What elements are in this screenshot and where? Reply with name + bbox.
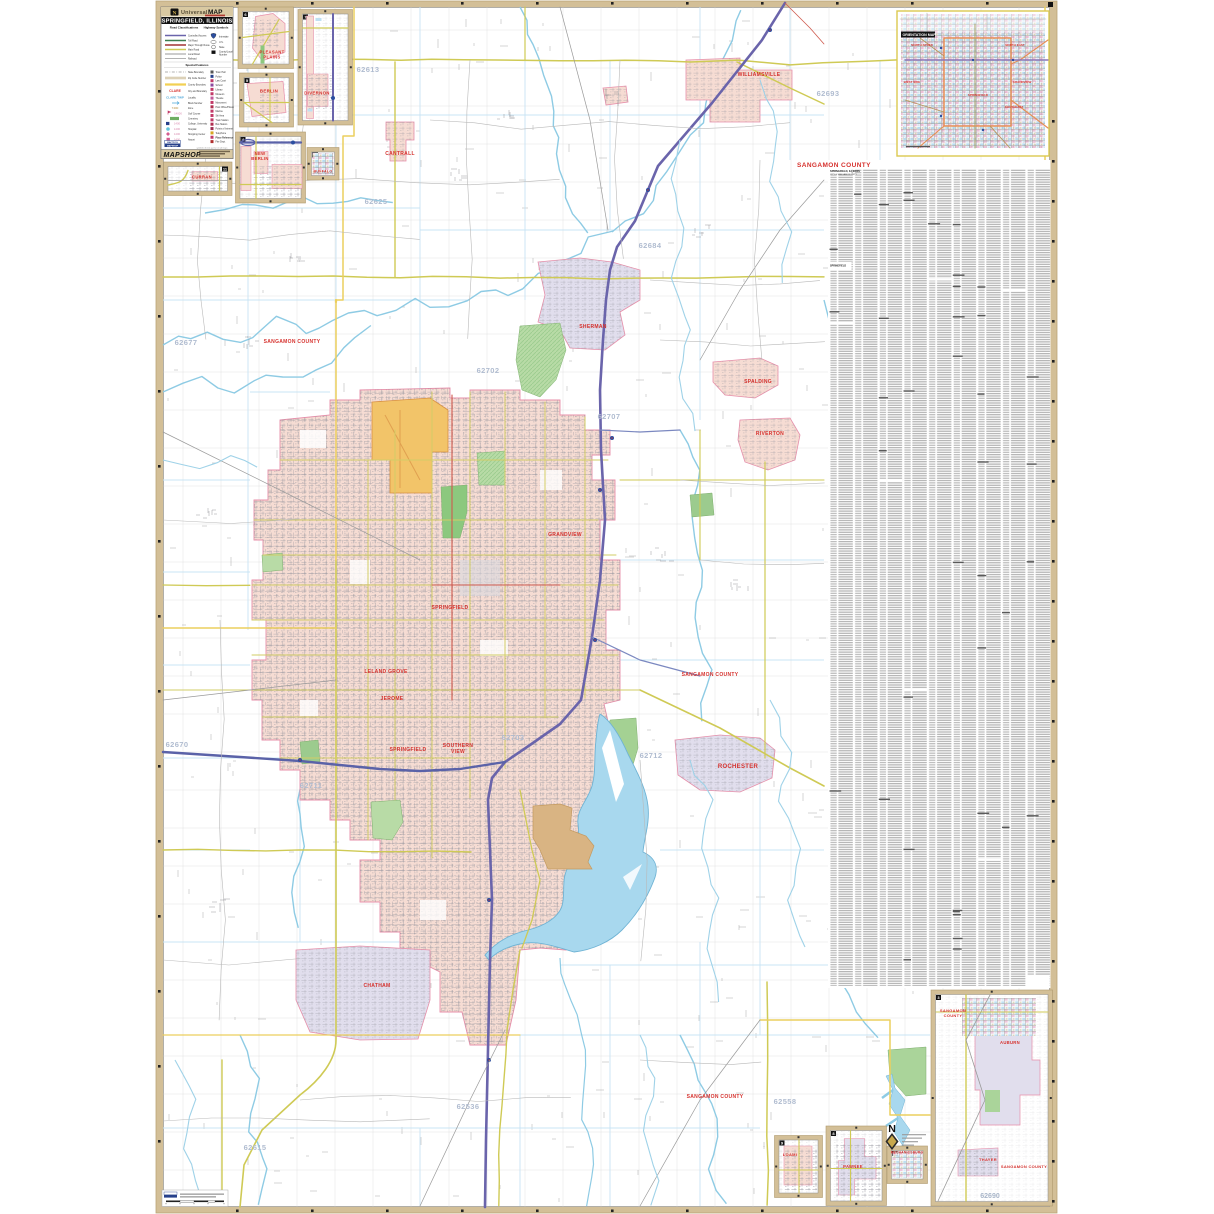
svg-text:Hospital: Hospital — [188, 128, 197, 131]
svg-text:CLARE: CLARE — [169, 89, 181, 93]
svg-text:DIVERNON: DIVERNON — [304, 91, 330, 96]
svg-text:MAPTECH: MAPTECH — [167, 141, 178, 144]
svg-text:62684: 62684 — [639, 241, 662, 250]
svg-text:ORIENTATION MAP: ORIENTATION MAP — [903, 33, 937, 37]
svg-text:SPRINGFIELD: SPRINGFIELD — [830, 265, 846, 268]
svg-text:Main Road: Main Road — [188, 50, 200, 52]
svg-text:1400: 1400 — [174, 127, 181, 131]
svg-text:62536: 62536 — [457, 1102, 480, 1111]
svg-text:SPRINGFIELD, ILLINOIS: SPRINGFIELD, ILLINOIS — [162, 19, 233, 25]
svg-text:LOAMI: LOAMI — [783, 1152, 797, 1157]
svg-text:62677: 62677 — [175, 338, 198, 347]
svg-text:1400: 1400 — [174, 122, 181, 126]
svg-text:LELAND GROVE: LELAND GROVE — [364, 669, 408, 675]
svg-text:Points of Interest: Points of Interest — [216, 128, 234, 131]
svg-text:Road Classifications: Road Classifications — [170, 26, 199, 30]
svg-text:62670: 62670 — [166, 740, 189, 749]
svg-text:VIEW: VIEW — [451, 749, 465, 755]
svg-text:SPRINGFIELD, ILLINOIS: SPRINGFIELD, ILLINOIS — [830, 169, 860, 173]
svg-text:CURRAN: CURRAN — [192, 175, 212, 180]
svg-text:Zone: Zone — [188, 108, 194, 110]
svg-text:Special Features: Special Features — [186, 63, 209, 67]
svg-text:Law Court: Law Court — [216, 80, 227, 83]
svg-text:SANGAMON COUNTY: SANGAMON COUNTY — [687, 1094, 744, 1100]
svg-text:SANGAMON COUNTY: SANGAMON COUNTY — [797, 162, 871, 169]
svg-text:SPRINGFIELD: SPRINGFIELD — [390, 747, 427, 753]
svg-text:WILLIAMSVILLE: WILLIAMSVILLE — [738, 72, 781, 78]
svg-text:GRANDVIEW: GRANDVIEW — [1013, 80, 1032, 84]
svg-text:CHATHAM: CHATHAM — [363, 983, 390, 989]
svg-text:SANGAMON COUNTY: SANGAMON COUNTY — [264, 339, 321, 345]
svg-text:Telephone: Telephone — [216, 133, 227, 135]
svg-text:Theatre: Theatre — [216, 97, 225, 100]
svg-text:Monument: Monument — [216, 101, 227, 104]
svg-text:Golf Course: Golf Course — [188, 113, 201, 116]
svg-text:SPRINGFIELD: SPRINGFIELD — [432, 605, 469, 611]
svg-text:Marina: Marina — [216, 110, 224, 113]
svg-text:NORTH SPGFD: NORTH SPGFD — [911, 43, 934, 47]
svg-text:College, University: College, University — [188, 123, 208, 126]
svg-text:County/Local: County/Local — [219, 51, 233, 54]
svg-text:AUBURN: AUBURN — [1000, 1040, 1020, 1045]
svg-text:14000: 14000 — [174, 112, 182, 116]
svg-text:Train Station: Train Station — [216, 119, 230, 122]
svg-text:62712: 62712 — [640, 751, 663, 760]
svg-text:CLARE TWP: CLARE TWP — [166, 96, 184, 100]
svg-text:SOUTHEAST: SOUTHEAST — [1005, 105, 1024, 109]
svg-text:Cemetery: Cemetery — [188, 118, 199, 121]
svg-text:NORTH EAST: NORTH EAST — [1005, 43, 1025, 47]
svg-text:SPALDING: SPALDING — [744, 379, 772, 385]
svg-text:CITY & SANGAMON CNTY: CITY & SANGAMON CNTY — [830, 173, 857, 176]
svg-text:RIVERTON: RIVERTON — [756, 431, 784, 437]
svg-text:62693: 62693 — [817, 89, 840, 98]
svg-text:62702: 62702 — [477, 366, 500, 375]
svg-text:Library: Library — [216, 88, 224, 91]
svg-text:Interstate: Interstate — [219, 36, 229, 39]
svg-text:Universal: Universal — [181, 10, 208, 16]
svg-text:CANTRALL: CANTRALL — [385, 151, 415, 157]
svg-text:62707: 62707 — [598, 412, 621, 421]
svg-text:62613: 62613 — [357, 65, 380, 74]
svg-text:Place Reference: Place Reference — [216, 137, 234, 139]
svg-text:State Boundary: State Boundary — [188, 71, 205, 74]
svg-text:PLAINS: PLAINS — [263, 55, 280, 60]
svg-text:symbols do not appear on all m: symbols do not appear on all maps — [196, 146, 227, 149]
svg-text:Post Office/Prison: Post Office/Prison — [216, 106, 235, 109]
svg-text:MAPSHOP: MAPSHOP — [164, 152, 202, 159]
svg-text:Toll Road: Toll Road — [188, 41, 198, 43]
svg-text:Railroad: Railroad — [188, 58, 197, 61]
svg-text:N: N — [173, 10, 177, 16]
svg-text:SANGAMON COUNTY: SANGAMON COUNTY — [682, 672, 739, 678]
svg-text:62703: 62703 — [502, 733, 525, 742]
svg-text:U.S.: U.S. — [219, 42, 224, 44]
svg-text:WEST SIDE: WEST SIDE — [904, 80, 921, 84]
svg-text:BERLIN: BERLIN — [260, 89, 278, 94]
svg-text:PAWNEE: PAWNEE — [843, 1164, 863, 1169]
svg-text:BERLIN: BERLIN — [251, 156, 268, 161]
svg-text:62690: 62690 — [980, 1193, 1000, 1200]
svg-text:Block Number: Block Number — [188, 102, 203, 105]
svg-text:City and Boundary: City and Boundary — [188, 90, 208, 93]
svg-text:Museum: Museum — [216, 94, 225, 96]
svg-text:Major Through Route: Major Through Route — [188, 44, 210, 47]
svg-text:BUFFALO: BUFFALO — [313, 170, 332, 174]
svg-text:Bus Station: Bus Station — [216, 123, 228, 126]
svg-text:62711: 62711 — [300, 781, 322, 790]
svg-text:62615: 62615 — [244, 1143, 267, 1152]
svg-text:Police: Police — [216, 76, 223, 78]
svg-text:COUNTY: COUNTY — [944, 1013, 963, 1018]
svg-text:Airport: Airport — [188, 139, 195, 142]
svg-text:Number: Number — [219, 53, 227, 56]
svg-text:State: State — [219, 46, 225, 49]
svg-text:Fire Dept.: Fire Dept. — [216, 141, 226, 144]
svg-text:THAYER: THAYER — [979, 1157, 997, 1162]
svg-text:SPRINGFIELD: SPRINGFIELD — [968, 93, 989, 97]
svg-text:Highway Symbols: Highway Symbols — [204, 26, 229, 30]
svg-text:Locality: Locality — [188, 97, 197, 100]
svg-text:Local Road: Local Road — [188, 54, 200, 56]
svg-text:School: School — [216, 85, 224, 87]
svg-text:Town Hall: Town Hall — [216, 72, 226, 74]
svg-text:MAPSHOP: MAPSHOP — [167, 145, 179, 148]
svg-text:Zip Code Number: Zip Code Number — [188, 77, 206, 80]
svg-text:1400: 1400 — [174, 132, 181, 136]
svg-text:62558: 62558 — [774, 1097, 797, 1106]
svg-text:SHERMAN: SHERMAN — [579, 324, 606, 330]
svg-text:62625: 62625 — [365, 197, 388, 206]
svg-text:JEROME: JEROME — [381, 696, 404, 702]
svg-text:ROCHESTER: ROCHESTER — [718, 764, 759, 770]
svg-text:Controlled Access: Controlled Access — [188, 35, 207, 38]
svg-text:7400: 7400 — [172, 106, 179, 110]
svg-text:SANGAMON COUNTY: SANGAMON COUNTY — [1001, 1164, 1047, 1169]
svg-text:Shopping Center: Shopping Center — [188, 133, 205, 136]
svg-text:Ski Area: Ski Area — [216, 115, 225, 118]
svg-text:GRANDVIEW: GRANDVIEW — [548, 532, 582, 538]
svg-text:MECHANICSBURG: MECHANICSBURG — [891, 1151, 924, 1155]
svg-text:County Boundary: County Boundary — [188, 84, 207, 87]
